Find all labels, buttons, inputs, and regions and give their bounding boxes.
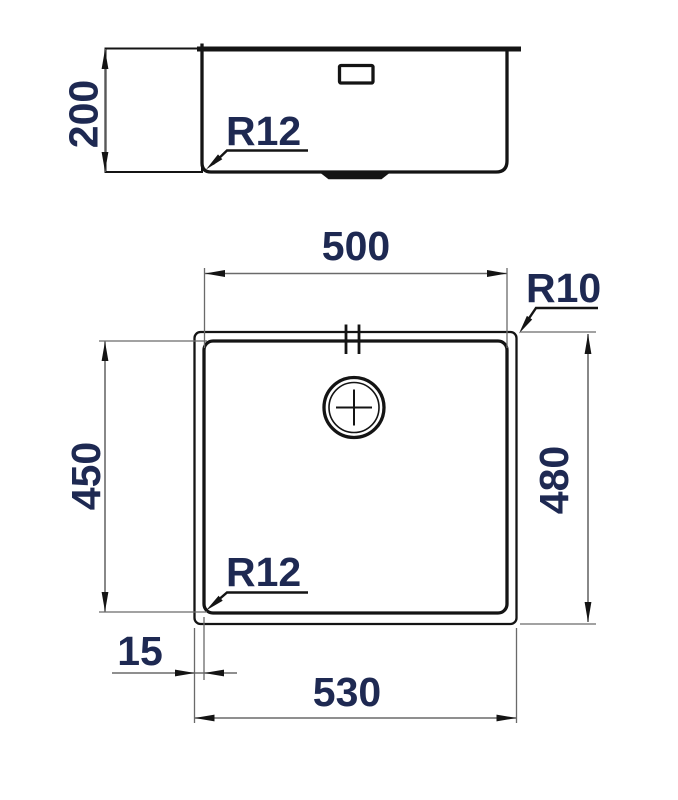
dim-530-label: 530: [313, 669, 381, 715]
dim-530-arrow-left: [195, 715, 215, 722]
dim-480-arrow-bottom: [585, 602, 592, 622]
r10-arrow: [519, 316, 532, 334]
r12-side-label: R12: [226, 108, 301, 154]
r12-side-arrow: [206, 154, 222, 169]
dim-500-label: 500: [322, 223, 390, 269]
dim-15-arrow-right: [204, 670, 224, 677]
dim-200-label: 200: [61, 80, 107, 148]
r10-label: R10: [526, 265, 601, 311]
r12-plan-callout: R12: [206, 549, 308, 611]
sink-technical-drawing: 200 R12 500: [0, 0, 678, 800]
dim-450-arrow-top: [102, 342, 109, 362]
dim-480-label: 480: [531, 446, 577, 514]
dim-500-arrow-right: [487, 270, 507, 277]
dim-530: 530: [195, 628, 517, 723]
dim-530-arrow-right: [497, 715, 517, 722]
drawing-svg: 200 R12 500: [0, 0, 678, 800]
drain-fitting: [320, 173, 390, 180]
dim-450: 450: [63, 341, 207, 612]
dim-480-arrow-top: [585, 334, 592, 354]
dim-15-label: 15: [117, 628, 163, 674]
side-counter-section: [106, 49, 203, 173]
drain: [324, 378, 384, 438]
plan-view: 500 R10 450 480 R12: [63, 223, 601, 723]
dim-15-arrow-left: [175, 670, 195, 677]
dim-500-arrow-left: [205, 270, 225, 277]
dim-200: 200: [61, 49, 109, 172]
r12-side-callout: R12: [206, 108, 308, 170]
dim-480: 480: [520, 332, 596, 624]
overflow-hole: [340, 66, 374, 84]
dim-200-arrow-bottom: [102, 152, 109, 172]
dim-200-arrow-top: [102, 50, 109, 70]
dim-450-label: 450: [63, 442, 109, 510]
dim-450-arrow-bottom: [102, 592, 109, 612]
r10-callout: R10: [519, 265, 601, 334]
dim-15: 15: [112, 617, 237, 723]
r12-plan-label: R12: [226, 549, 301, 595]
r12-plan-arrow: [206, 596, 223, 611]
side-view: 200 R12: [61, 44, 522, 180]
dim-500: 500: [205, 223, 508, 348]
